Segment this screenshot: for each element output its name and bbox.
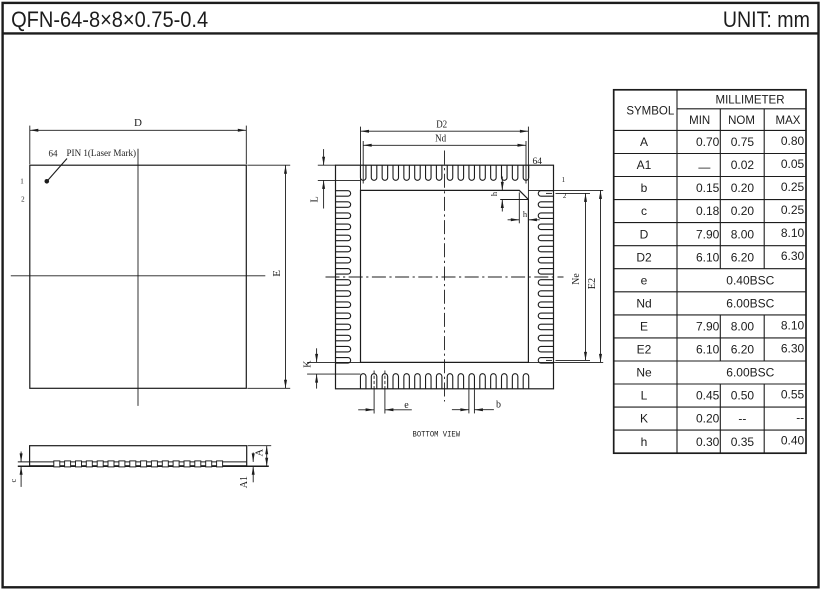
svg-text:6.10: 6.10 [696, 343, 720, 357]
svg-text:6.20: 6.20 [731, 250, 755, 264]
svg-text:1: 1 [562, 176, 566, 184]
svg-text:0.18: 0.18 [696, 204, 720, 218]
svg-text:2: 2 [21, 196, 25, 204]
svg-text:BOTTOM VIEW: BOTTOM VIEW [413, 432, 461, 440]
svg-text:K: K [640, 412, 648, 426]
svg-text:7.90: 7.90 [696, 320, 720, 334]
svg-text:SYMBOL: SYMBOL [626, 105, 675, 117]
svg-text:A1: A1 [239, 476, 250, 488]
svg-text:0.02: 0.02 [731, 158, 755, 172]
svg-text:--: -- [738, 412, 746, 426]
svg-text:Nd: Nd [636, 296, 651, 310]
svg-text:0.35: 0.35 [731, 435, 755, 449]
svg-text:0.15: 0.15 [696, 181, 720, 195]
svg-text:A: A [640, 135, 648, 149]
svg-text:64: 64 [532, 157, 542, 167]
svg-text:E2: E2 [637, 343, 652, 357]
svg-text:0.80: 0.80 [781, 134, 805, 148]
svg-text:0.20: 0.20 [696, 412, 720, 426]
svg-text:0.05: 0.05 [781, 157, 805, 171]
svg-text:0.50: 0.50 [731, 389, 755, 403]
svg-text:b: b [496, 400, 501, 411]
svg-text:E2: E2 [587, 278, 598, 289]
svg-text:D: D [640, 227, 649, 241]
svg-text:MAX: MAX [776, 115, 801, 127]
svg-text:64: 64 [49, 148, 59, 158]
svg-text:0.40BSC: 0.40BSC [726, 273, 774, 287]
svg-text:NOM: NOM [728, 115, 755, 127]
svg-text:D2: D2 [636, 250, 652, 264]
svg-text:D2: D2 [436, 120, 447, 131]
svg-text:A: A [255, 448, 266, 456]
svg-text:—: — [698, 160, 710, 174]
svg-text:h: h [489, 191, 499, 196]
svg-text:Nd: Nd [435, 133, 446, 144]
svg-text:L: L [641, 389, 648, 403]
svg-text:7.90: 7.90 [696, 227, 720, 241]
svg-text:0.25: 0.25 [781, 203, 805, 217]
svg-text:6.00BSC: 6.00BSC [726, 296, 774, 310]
svg-text:D: D [134, 117, 142, 129]
svg-text:--: -- [796, 411, 804, 425]
svg-text:0.20: 0.20 [731, 181, 755, 195]
svg-text:0.40: 0.40 [781, 434, 805, 448]
svg-text:8.00: 8.00 [731, 320, 755, 334]
svg-text:MIN: MIN [689, 115, 710, 127]
svg-text:8.10: 8.10 [781, 318, 805, 332]
svg-text:1: 1 [20, 177, 24, 185]
svg-text:PIN 1(Laser Mark): PIN 1(Laser Mark) [67, 148, 137, 159]
svg-text:6.10: 6.10 [696, 250, 720, 264]
svg-text:0.25: 0.25 [781, 180, 805, 194]
svg-text:Ne: Ne [571, 273, 582, 285]
svg-text:2: 2 [563, 192, 567, 200]
svg-text:e: e [404, 400, 409, 411]
svg-text:6.30: 6.30 [781, 249, 805, 263]
svg-text:6.00BSC: 6.00BSC [726, 366, 774, 380]
svg-text:L: L [310, 196, 321, 202]
svg-text:K: K [303, 360, 314, 368]
svg-text:6.20: 6.20 [731, 343, 755, 357]
svg-text:h: h [641, 435, 648, 449]
svg-text:E: E [640, 320, 648, 334]
svg-text:e: e [641, 273, 648, 287]
svg-text:c: c [641, 204, 647, 218]
svg-text:0.30: 0.30 [696, 435, 720, 449]
svg-text:0.45: 0.45 [696, 389, 720, 403]
svg-text:Ne: Ne [636, 366, 652, 380]
svg-text:E: E [271, 270, 283, 277]
svg-text:MILLIMETER: MILLIMETER [715, 95, 784, 107]
svg-text:6.30: 6.30 [781, 341, 805, 355]
svg-text:8.00: 8.00 [731, 227, 755, 241]
svg-text:c: c [8, 478, 18, 482]
svg-text:QFN-64-8×8×0.75-0.4: QFN-64-8×8×0.75-0.4 [11, 7, 208, 32]
svg-text:UNIT: mm: UNIT: mm [723, 7, 810, 32]
svg-text:0.55: 0.55 [781, 388, 805, 402]
svg-text:0.20: 0.20 [731, 204, 755, 218]
svg-text:8.10: 8.10 [781, 226, 805, 240]
svg-text:0.70: 0.70 [696, 135, 720, 149]
svg-text:0.75: 0.75 [731, 135, 755, 149]
svg-text:A1: A1 [637, 158, 652, 172]
svg-text:b: b [641, 181, 648, 195]
